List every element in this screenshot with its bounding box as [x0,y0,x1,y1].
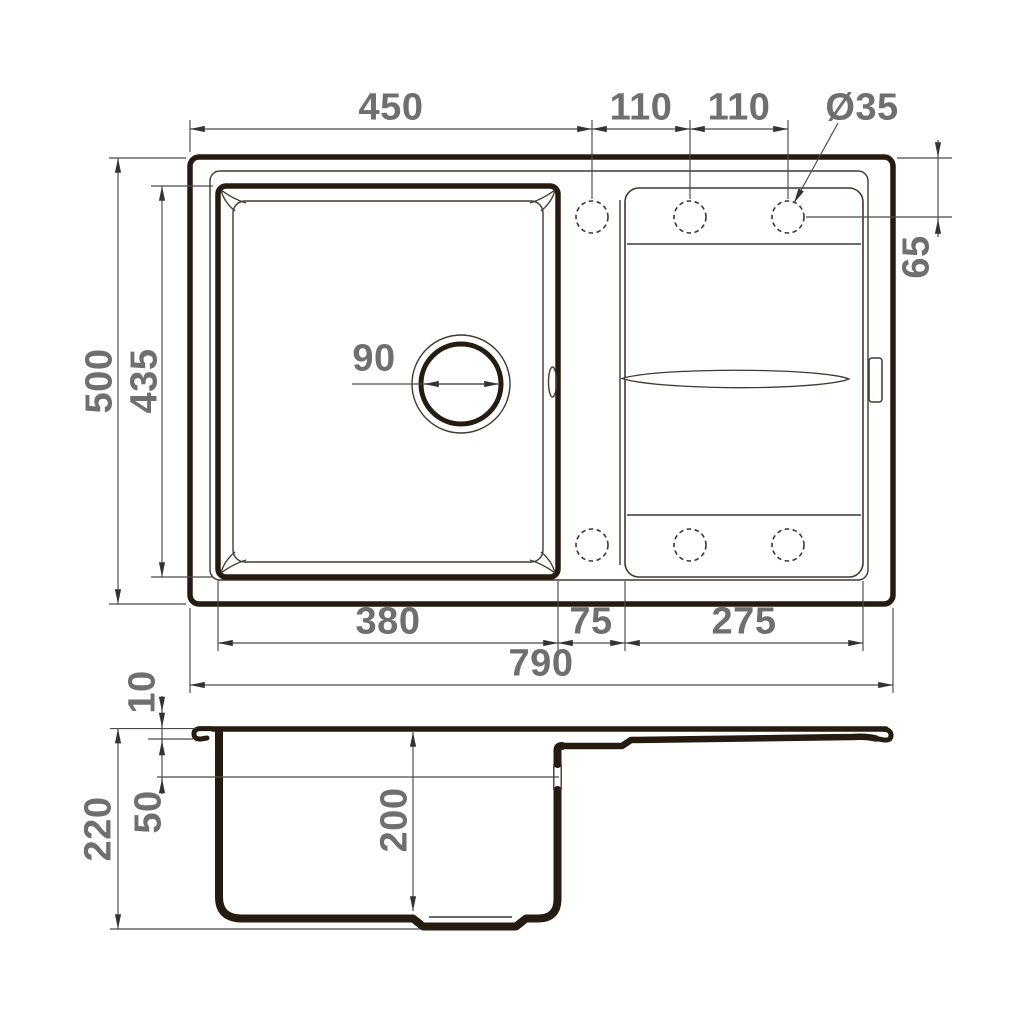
dim-label-790: 790 [509,642,574,684]
dim-10: 10 [121,670,163,794]
bowl-inner-edge [233,201,543,562]
dim-110-first: 110 [592,86,690,129]
dim-label-200: 200 [373,788,415,853]
drainboard-groove [622,370,849,387]
faucet-hole-bottom-2 [674,529,706,561]
dim-label-10: 10 [121,670,163,713]
dim-label-500: 500 [78,349,120,414]
dim-790: 790 [190,642,893,685]
dim-label-450: 450 [359,86,424,128]
faucet-hole-bottom-1 [576,529,608,561]
bowl-corner-bevels [221,190,555,573]
dim-50: 50 [127,779,169,834]
bowl [218,186,558,577]
side-view [194,729,891,927]
dim-110-second: 110 [690,86,788,129]
dim-label-380: 380 [356,600,421,642]
dim-label-110-first: 110 [610,86,673,128]
dim-200: 200 [373,732,415,911]
dim-label-65: 65 [895,235,937,278]
dim-220: 220 [77,729,119,929]
dim-label-50: 50 [127,790,169,833]
dim-label-75: 75 [569,600,612,642]
dim-435: 435 [123,186,165,577]
rim-left-end-cap [194,729,212,739]
dim-450: 450 [190,86,592,129]
dim-label-220: 220 [77,797,119,862]
side-view-dimensions: 10 50 220 200 [77,670,559,929]
faucet-hole-top-3 [772,201,804,233]
extension-lines-side [110,729,559,929]
dim-label-hole-diameter: Ø35 [825,86,898,128]
dim-label-435: 435 [123,349,165,414]
drawing-canvas: 450 110 110 Ø35 65 500 [0,0,1024,1024]
dim-500: 500 [78,158,120,604]
dim-label-90: 90 [352,337,395,379]
faucet-hole-bottom-3 [772,529,804,561]
top-view [190,157,893,604]
dim-label-275: 275 [712,600,777,642]
bowl-outer-edge [218,186,558,577]
dim-65: 65 [895,140,938,279]
faucet-hole-top-1 [576,201,608,233]
sink-technical-drawing: 450 110 110 Ø35 65 500 [0,0,1024,1024]
overflow-cover [869,358,882,402]
dim-label-110-second: 110 [708,86,771,128]
drainboard [620,188,863,577]
dim-hole-diameter: Ø35 [794,86,899,203]
faucet-hole-top-2 [674,201,706,233]
drainboard-surface-profile [560,737,876,746]
